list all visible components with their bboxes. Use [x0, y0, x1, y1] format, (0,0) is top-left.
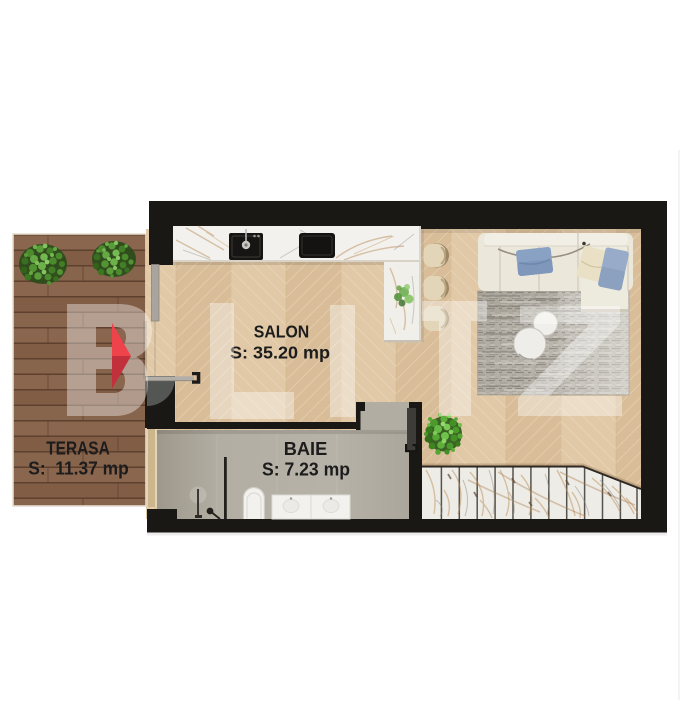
svg-text:S: 11.37 mp: S: 11.37 mp: [28, 459, 129, 479]
svg-text:S: 35.20 mp: S: 35.20 mp: [230, 343, 330, 363]
svg-text:BAIE: BAIE: [284, 438, 328, 459]
svg-text:S: 7.23 mp: S: 7.23 mp: [262, 460, 350, 480]
svg-text:TERASA: TERASA: [46, 439, 110, 459]
svg-text:SALON: SALON: [254, 322, 310, 342]
